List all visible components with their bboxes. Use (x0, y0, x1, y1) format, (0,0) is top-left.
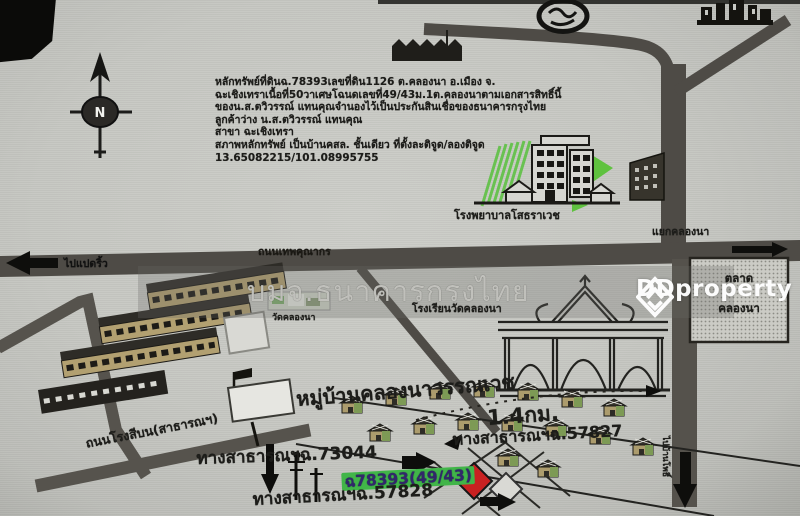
direction-south-label: ไปบ้านโพธิ์ (658, 436, 672, 477)
property-location-map: N (0, 0, 800, 516)
header-line: ลูกค้าว่าง น.ส.ตวิวรรณ์ แทนคุณ (215, 114, 561, 127)
property-header-block: หลักทรัพย์ที่ดินฉ.78393เลขที่ดิน1126 ต.ค… (215, 76, 561, 164)
direction-west-label: ไปแปดริ้ว (64, 255, 108, 272)
header-line: ฉะเชิงเทราเนื้อที่50วาเศษโฉนดเลขที่49/43… (215, 89, 561, 102)
school-label: โรงเรียนวัดคลองนา (412, 300, 502, 317)
hospital-label: โรงพยาบาลโสธราเวช (454, 206, 560, 224)
city-gate-icon (697, 0, 773, 25)
header-line: สาขา ฉะเชิงเทรา (215, 126, 561, 139)
ddproperty-logo-icon (636, 276, 674, 318)
header-line: ของน.ส.ตวิวรรณ์ แทนคุณจำนองไว้เป็นประกัน… (215, 101, 561, 114)
ddproperty-watermark: DDproperty (636, 276, 792, 302)
office-building-icon (630, 153, 664, 200)
photo-caption: วัดคลองนา (272, 310, 315, 324)
compass-north-label: N (95, 106, 106, 121)
city-crest-icon (539, 1, 587, 32)
header-line: สภาพหลักทรัพย์ เป็นบ้านคสล. ชั้นเดียว ที… (215, 139, 561, 152)
junction-label: แยกคลองนา (652, 223, 709, 240)
header-line: หลักทรัพย์ที่ดินฉ.78393เลขที่ดิน1126 ต.ค… (215, 76, 561, 89)
compass-rose: N (70, 52, 132, 158)
main-road-label: ถนนเทพคุณากร (258, 243, 331, 260)
market-label-line2: คลองนา (690, 300, 788, 318)
header-coordinates: 13.65082215/101.08995755 (215, 152, 561, 165)
